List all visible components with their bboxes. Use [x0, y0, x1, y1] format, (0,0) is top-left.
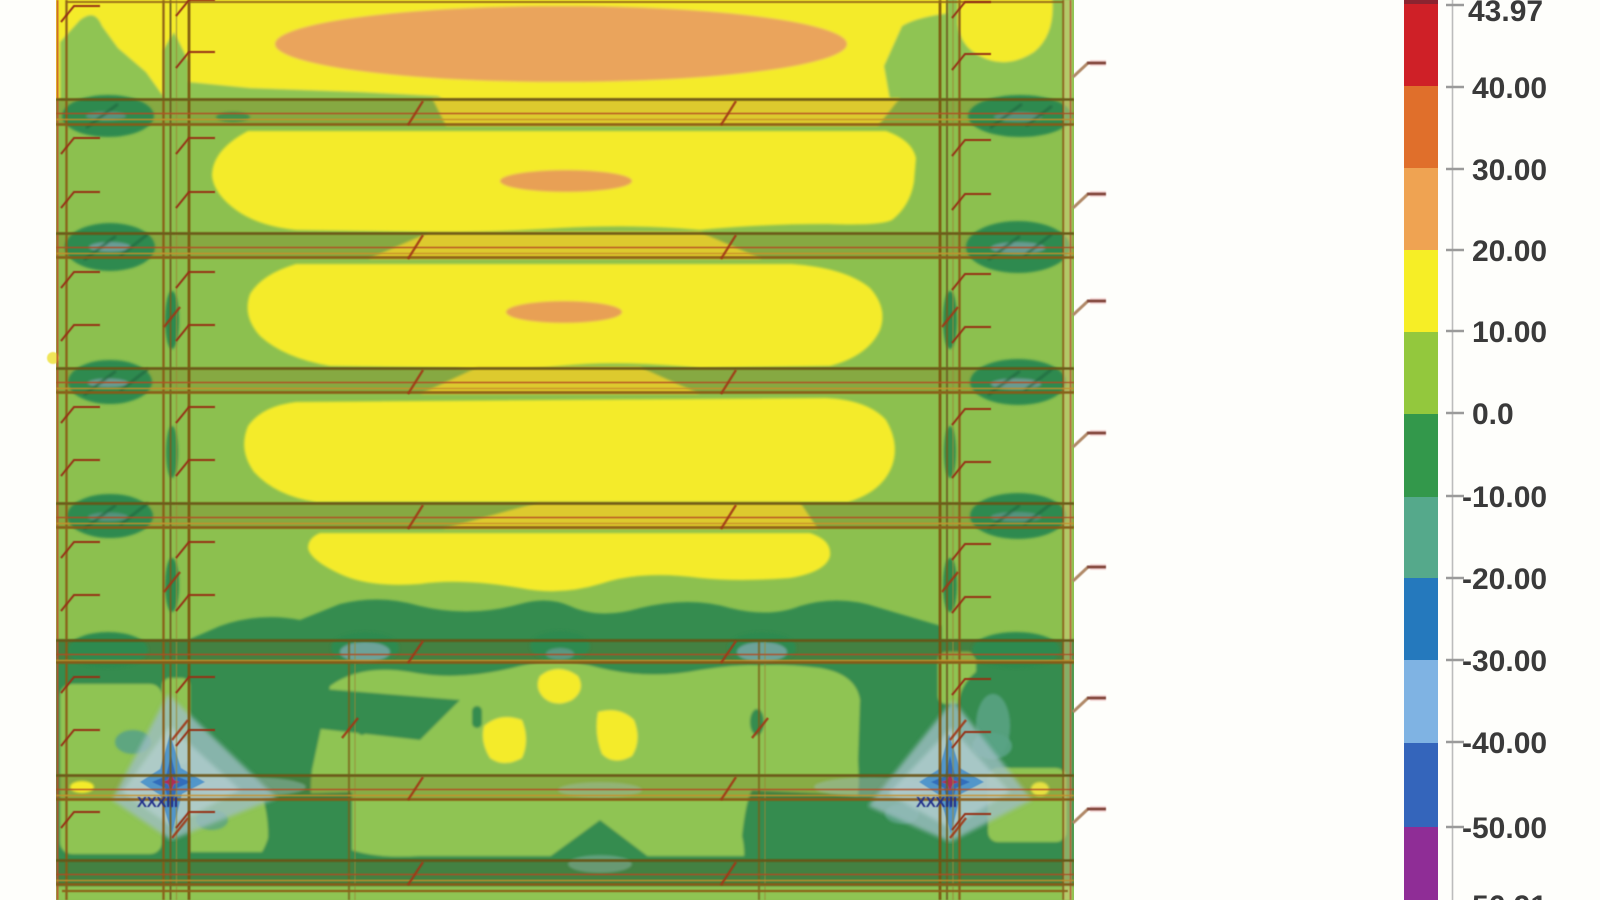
svg-text:-20.00: -20.00 [1462, 563, 1547, 596]
svg-text:-10.00: -10.00 [1462, 481, 1547, 514]
svg-text:0.0: 0.0 [1472, 398, 1514, 431]
svg-text:40.00: 40.00 [1472, 72, 1547, 105]
svg-text:-40.00: -40.00 [1462, 727, 1547, 760]
svg-text:10.00: 10.00 [1472, 316, 1547, 349]
svg-text:-56.91: -56.91 [1462, 890, 1547, 900]
svg-text:-30.00: -30.00 [1462, 645, 1547, 678]
svg-text:30.00: 30.00 [1472, 154, 1547, 187]
svg-text:20.00: 20.00 [1472, 235, 1547, 268]
svg-text:XXXIII: XXXIII [137, 794, 178, 811]
svg-text:XXXIII: XXXIII [916, 794, 957, 811]
svg-text:43.97: 43.97 [1468, 0, 1543, 28]
svg-text:-50.00: -50.00 [1462, 812, 1547, 845]
